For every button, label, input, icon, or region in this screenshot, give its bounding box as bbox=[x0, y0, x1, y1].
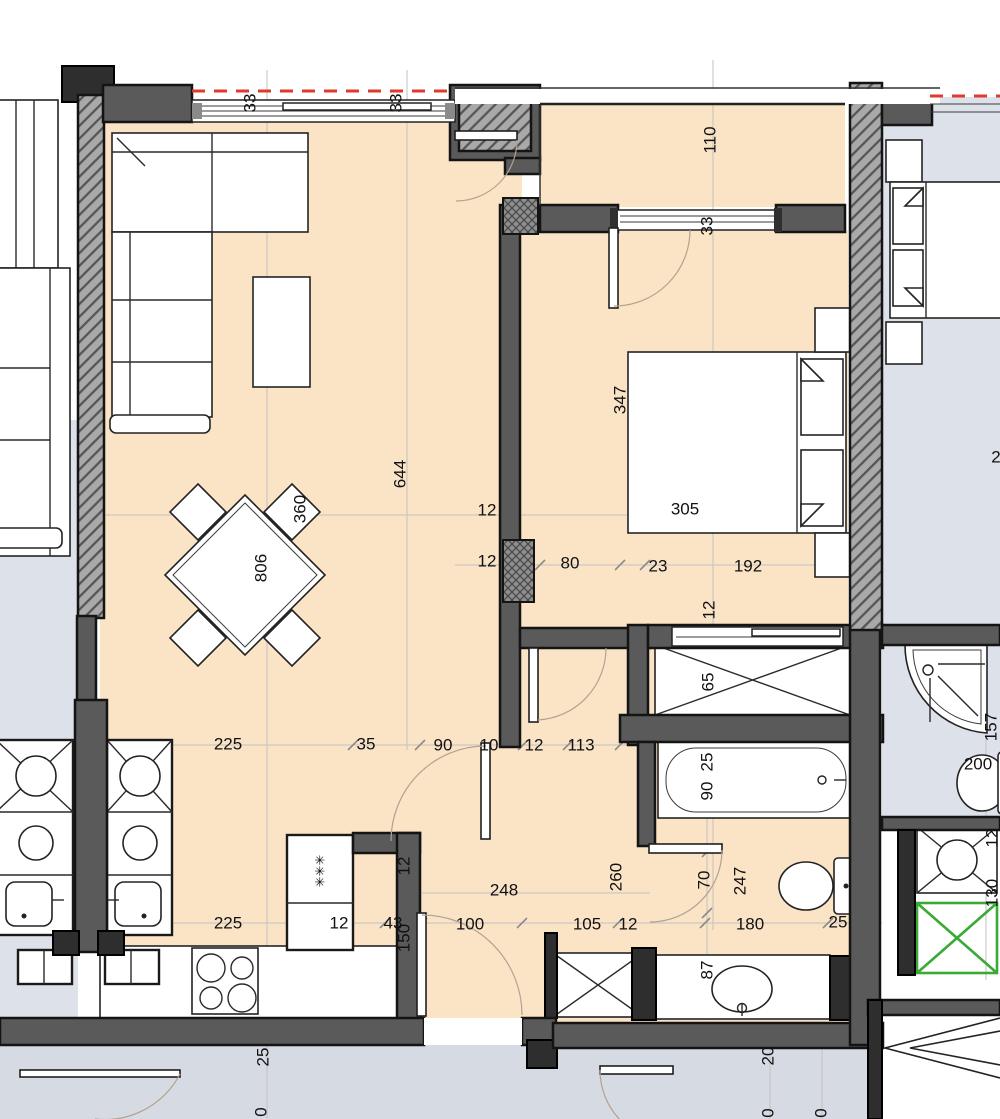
dim-label: 33 bbox=[388, 94, 405, 113]
dim-label: 90 bbox=[699, 782, 716, 801]
dim-label: 347 bbox=[612, 386, 629, 414]
dim-label: 12 bbox=[619, 916, 638, 933]
dim-label: 87 bbox=[699, 961, 716, 980]
dim-label: 35 bbox=[357, 736, 376, 753]
dim-label: 200 bbox=[964, 756, 992, 773]
dim-label: 25 bbox=[699, 753, 716, 772]
dim-label: 33 bbox=[699, 217, 716, 236]
dim-label: 305 bbox=[671, 501, 699, 518]
dim-label: 12 bbox=[701, 601, 718, 620]
dim-label: 23 bbox=[649, 558, 668, 575]
dim-label: 360 bbox=[292, 495, 309, 523]
dim-label: 90 bbox=[434, 737, 453, 754]
dim-label: 70 bbox=[696, 871, 713, 890]
dim-label: 105 bbox=[573, 916, 601, 933]
dim-label: 130 bbox=[984, 879, 1000, 907]
dim-label: 644 bbox=[392, 460, 409, 488]
dim-label: 65 bbox=[700, 673, 717, 692]
floor-plan: 3333110333473056443608061212802319212225… bbox=[0, 0, 1000, 1119]
dim-label: 260 bbox=[608, 863, 625, 891]
dim-label: 806 bbox=[253, 554, 270, 582]
dim-label: 12 bbox=[478, 553, 497, 570]
dim-label: 25 bbox=[829, 914, 848, 931]
dim-label: 100 bbox=[456, 916, 484, 933]
dim-label: 80 bbox=[561, 555, 580, 572]
dim-label: ✳✳✳ bbox=[314, 855, 327, 888]
dim-label: 248 bbox=[490, 882, 518, 899]
dim-label: 33 bbox=[242, 94, 259, 113]
dim-label: 2 bbox=[991, 449, 1000, 466]
dim-label: 0 bbox=[760, 1108, 777, 1117]
dim-label: 0 bbox=[253, 1107, 270, 1116]
dim-label: 12 bbox=[478, 502, 497, 519]
dim-label: 247 bbox=[732, 867, 749, 895]
labels-layer: 3333110333473056443608061212802319212225… bbox=[0, 0, 1000, 1119]
dim-label: 150 bbox=[396, 924, 413, 952]
dim-label: 113 bbox=[567, 737, 594, 754]
dim-label: 12 bbox=[525, 737, 544, 754]
dim-label: 12 bbox=[330, 915, 349, 932]
dim-label: 12 bbox=[984, 829, 1000, 848]
dim-label: 12 bbox=[396, 857, 413, 876]
dim-label: 25 bbox=[255, 1048, 272, 1067]
dim-label: 180 bbox=[736, 916, 764, 933]
dim-label: 0 bbox=[813, 1108, 830, 1117]
dim-label: 192 bbox=[734, 558, 762, 575]
dim-label: 157 bbox=[983, 713, 1000, 741]
dim-label: 10 bbox=[480, 737, 499, 754]
dim-label: 225 bbox=[214, 736, 242, 753]
dim-label: 110 bbox=[702, 126, 719, 153]
dim-label: 20 bbox=[760, 1047, 777, 1066]
dim-label: 225 bbox=[214, 915, 242, 932]
